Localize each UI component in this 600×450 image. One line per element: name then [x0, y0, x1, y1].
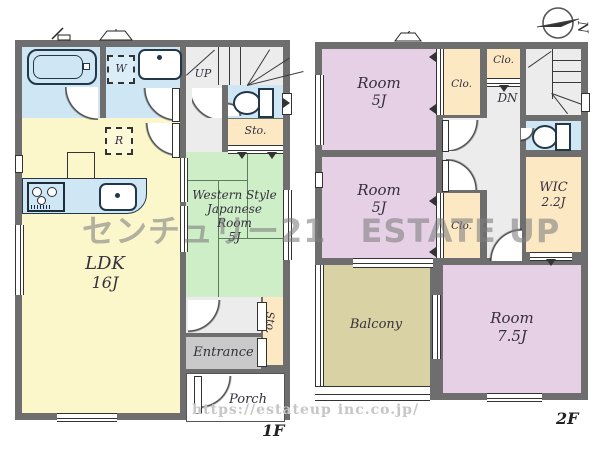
- ldk-cabinet: [67, 152, 95, 179]
- balcony-room-window: [432, 295, 441, 359]
- refrigerator-box: R: [105, 127, 133, 155]
- window: [487, 393, 542, 402]
- toilet-tank-2f: [555, 123, 571, 151]
- room-c-label: Room 7.5J: [443, 310, 581, 345]
- balcony-sliding-window: [353, 258, 433, 268]
- chevron-down-icon: [546, 259, 556, 266]
- exterior-vent-mark: [98, 29, 134, 41]
- closet-b-label: Clo.: [487, 54, 520, 66]
- stairs-down-label: DN: [491, 91, 524, 105]
- stair-line: [240, 47, 241, 85]
- stair-line: [552, 49, 553, 99]
- refrigerator-label: R: [115, 135, 123, 148]
- vent-arrow-icon: [283, 98, 290, 108]
- stair-line: [552, 60, 581, 61]
- burner: [37, 196, 46, 205]
- stair-line: [552, 82, 581, 83]
- balcony-rail: [315, 386, 430, 401]
- faucet: [157, 55, 162, 60]
- window: [57, 413, 117, 422]
- exterior-faucet-mark: [50, 26, 74, 41]
- toilet-bowl-1f: [233, 91, 261, 115]
- chevron-down-icon: [267, 152, 277, 159]
- floor1-label: 1F: [262, 421, 285, 440]
- ldk-door-leaf: [172, 123, 180, 158]
- vent-window: [15, 155, 23, 173]
- washroom-sink: [138, 49, 182, 80]
- storage-entrance-label: Sto.: [263, 302, 276, 342]
- toilet-tank-1f: [258, 88, 274, 118]
- washing-machine-box: W: [107, 55, 135, 84]
- watermark-url: https://estateup inc.co.jp/: [192, 402, 419, 418]
- compass-icon: N: [531, 2, 593, 44]
- storage-top-label: Sto.: [228, 125, 283, 138]
- burner: [47, 187, 57, 197]
- room-a-label: Room 5J: [322, 75, 436, 109]
- room-a-door-leaf: [442, 120, 449, 152]
- tatami-line: [186, 180, 247, 181]
- stair-line: [552, 71, 581, 72]
- stairs-up-label: UP: [187, 68, 219, 81]
- stair-line: [229, 47, 230, 85]
- ldk-label: LDK 16J: [55, 253, 155, 293]
- watermark-brand: センチュリー21ESTATE UP: [82, 206, 560, 252]
- bathtub-drain: [83, 63, 90, 70]
- bathroom-door: [65, 87, 98, 120]
- room-b-door-leaf: [442, 160, 449, 192]
- room-b-door: [446, 159, 479, 190]
- vent-window: [581, 93, 590, 112]
- closet-a-label: Clo.: [443, 78, 480, 90]
- balcony-label: Balcony: [322, 317, 430, 332]
- exterior-vent-mark-2f: [393, 31, 423, 42]
- faucet: [115, 193, 120, 198]
- bathtub: [27, 49, 97, 85]
- window: [15, 225, 24, 295]
- hallway-door: [188, 300, 221, 333]
- washroom-door-leaf: [172, 88, 180, 122]
- chevron-left-icon: [429, 52, 436, 62]
- grill: [31, 205, 51, 209]
- floor2-label: 2F: [556, 409, 579, 428]
- floorplan-canvas: N: [0, 0, 600, 450]
- room-a-door: [446, 120, 479, 151]
- stove: [27, 182, 65, 212]
- washing-machine-label: W: [115, 63, 126, 76]
- entrance-label: Entrance: [186, 345, 261, 360]
- chevron-down-icon: [237, 152, 247, 159]
- hall-door: [192, 88, 222, 118]
- svg-text:N: N: [574, 20, 590, 35]
